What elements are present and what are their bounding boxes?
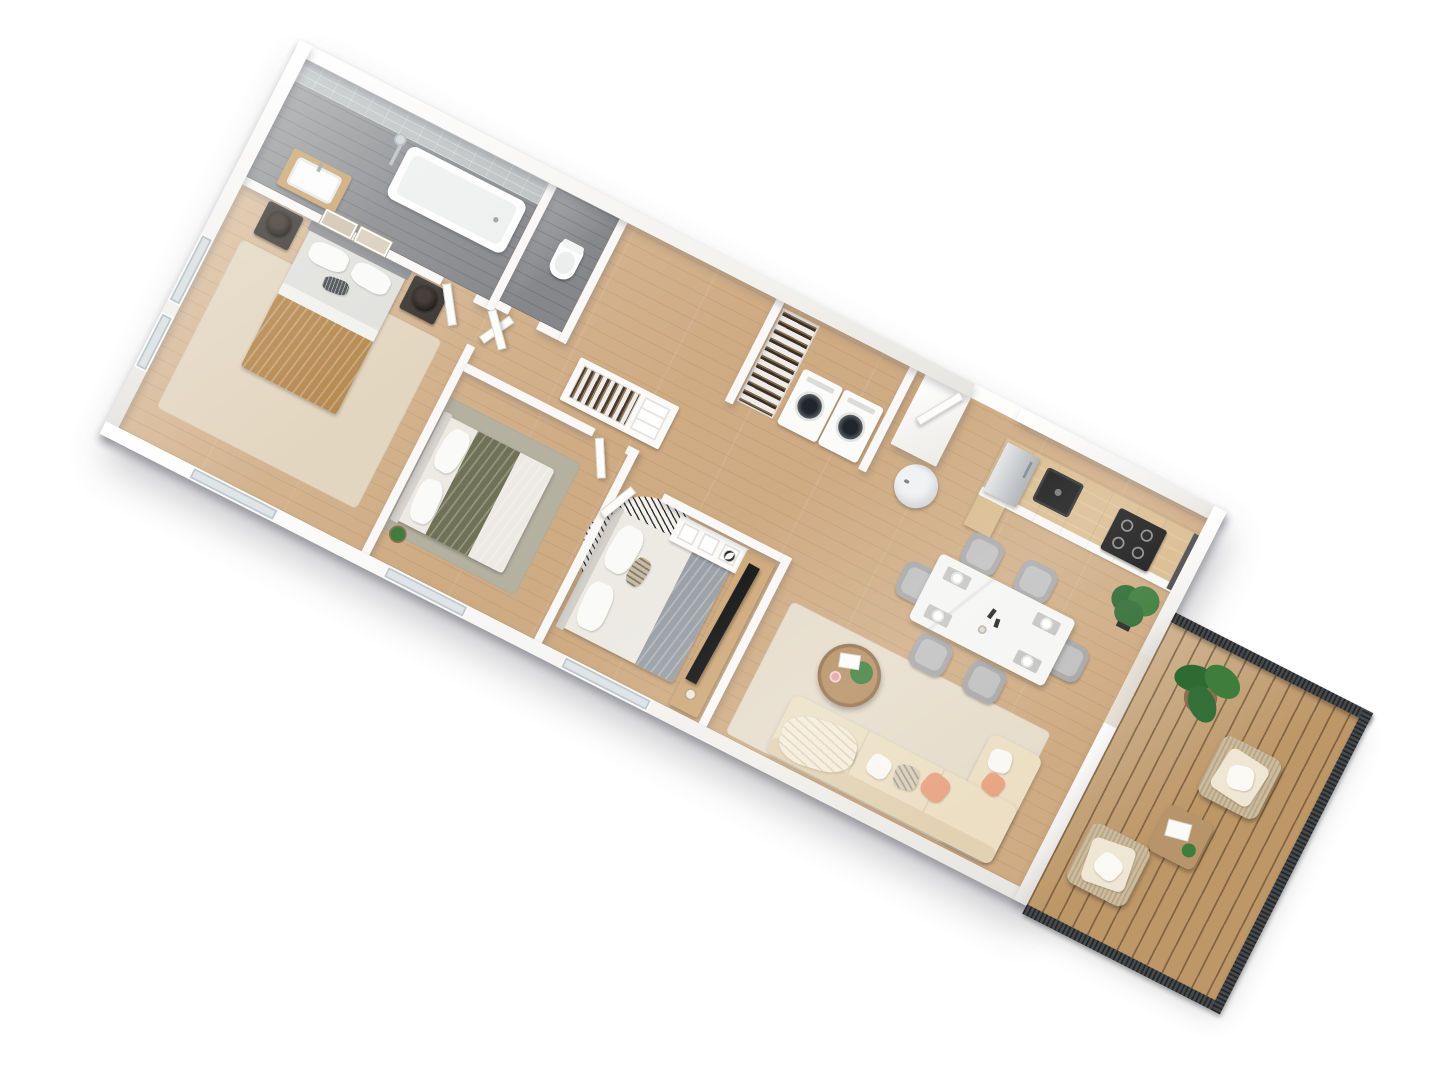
heater-valve-icon xyxy=(904,479,910,485)
table-lamp-icon xyxy=(262,208,295,241)
bedroom2-door xyxy=(595,438,606,479)
bathroom-door xyxy=(442,283,457,326)
book-icon xyxy=(839,653,860,669)
placemat xyxy=(942,566,972,591)
table-vase-icon xyxy=(976,624,988,636)
burner-icon xyxy=(1110,535,1127,552)
fridge-handle-icon xyxy=(1022,462,1032,479)
placemat xyxy=(1032,612,1062,637)
pink-cup-icon xyxy=(828,669,843,684)
shelf-cubby xyxy=(676,522,700,546)
placemat xyxy=(923,604,953,629)
burner-icon xyxy=(1119,517,1136,534)
placemat xyxy=(1012,649,1042,674)
book-icon xyxy=(1165,820,1191,841)
dryer-panel xyxy=(847,397,876,415)
wardrobe-hanging-clothes xyxy=(568,366,640,426)
plate-icon xyxy=(1019,653,1036,670)
dryer-door-icon xyxy=(834,411,867,444)
candle-icon xyxy=(993,618,1000,628)
console-decor-icon xyxy=(685,688,697,700)
plate-icon xyxy=(1038,616,1055,633)
washer-door-icon xyxy=(793,390,826,423)
water-heater xyxy=(886,457,945,516)
dalmatian-dog-icon xyxy=(721,548,738,565)
shelf-cubby-dog xyxy=(717,543,741,567)
burner-icon xyxy=(1138,527,1155,544)
nightstand-right xyxy=(399,275,450,326)
burner-icon xyxy=(1130,545,1147,562)
plate-icon xyxy=(930,608,947,625)
hall-wardrobe xyxy=(559,357,679,450)
apartment-slab xyxy=(99,40,1226,906)
wood-floor xyxy=(118,59,1207,887)
table-lamp-icon xyxy=(408,283,441,316)
washer-panel xyxy=(806,376,835,394)
faucet-icon xyxy=(1053,488,1062,497)
plate-icon xyxy=(949,570,966,587)
floor-plan-scene xyxy=(84,40,1438,1043)
table-plant-icon xyxy=(1179,841,1198,860)
shelf-cubby xyxy=(697,533,721,557)
